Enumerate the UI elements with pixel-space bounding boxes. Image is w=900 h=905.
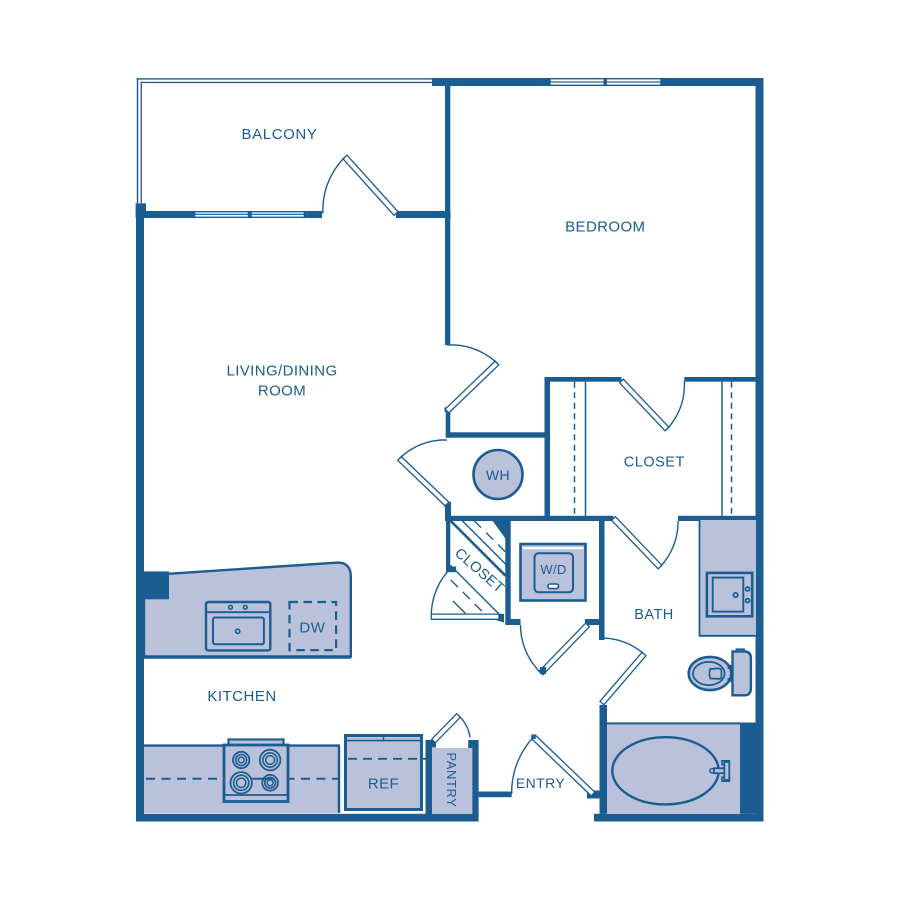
svg-text:WH: WH [486,467,510,483]
svg-text:REF: REF [368,776,399,793]
svg-text:BEDROOM: BEDROOM [565,219,645,236]
svg-text:W/D: W/D [540,562,566,577]
svg-text:ROOM: ROOM [258,383,306,400]
svg-text:PANTRY: PANTRY [444,752,459,807]
svg-text:CLOSET: CLOSET [451,545,507,596]
svg-text:CLOSET: CLOSET [624,454,685,470]
svg-text:KITCHEN: KITCHEN [207,688,276,705]
svg-text:BALCONY: BALCONY [242,126,318,143]
svg-text:BATH: BATH [634,607,674,623]
svg-text:DW: DW [299,620,325,637]
svg-text:ENTRY: ENTRY [516,775,565,791]
svg-text:LIVING/DINING: LIVING/DINING [226,363,337,380]
